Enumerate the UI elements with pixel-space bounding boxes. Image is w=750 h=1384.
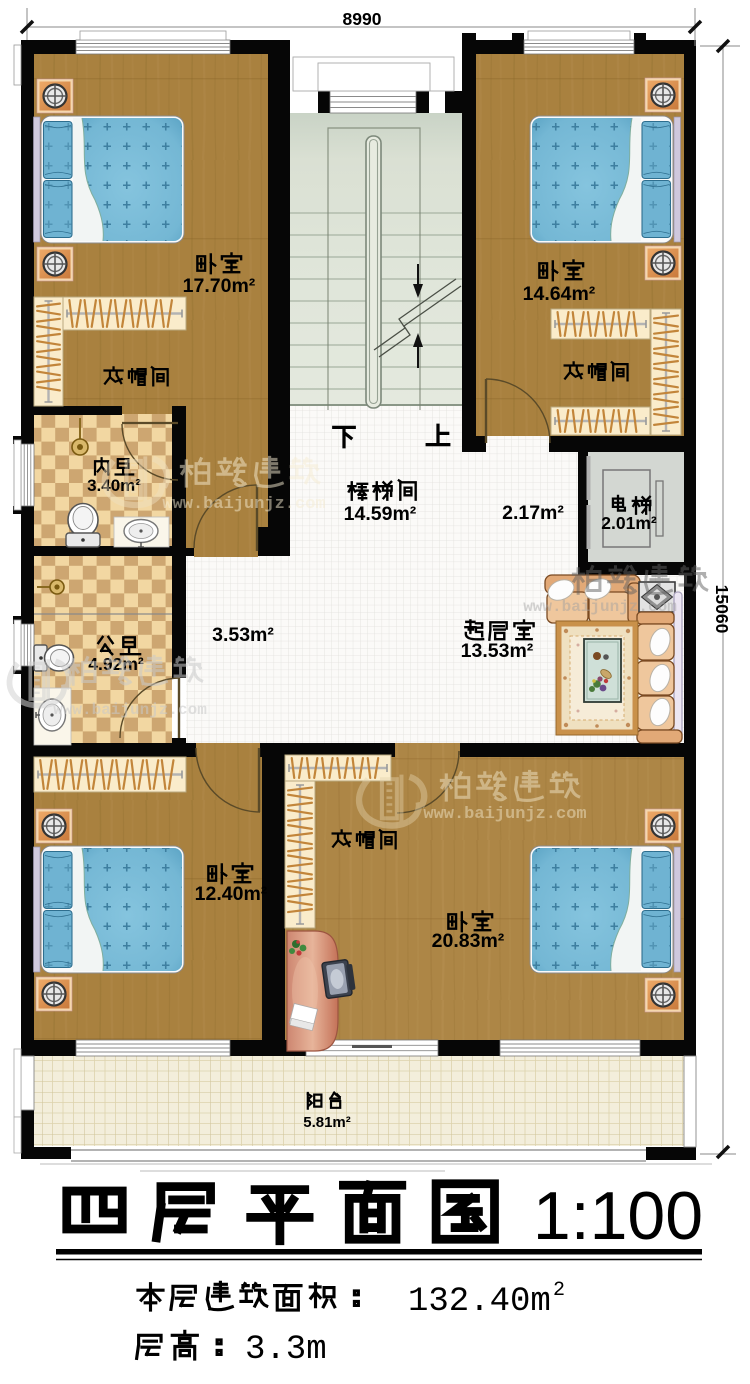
svg-text:15060: 15060 (712, 585, 732, 634)
svg-text:www.baijunjz.com: www.baijunjz.com (423, 805, 586, 824)
svg-text:www.baijunjz.com: www.baijunjz.com (162, 495, 325, 514)
svg-text:2.01m²: 2.01m² (601, 513, 657, 533)
svg-text:14.64m²: 14.64m² (523, 283, 596, 305)
svg-text:1:100: 1:100 (533, 1178, 703, 1254)
svg-text:3.3m: 3.3m (245, 1331, 327, 1369)
svg-text:www.baijunjz.com: www.baijunjz.com (523, 598, 677, 616)
svg-text:8990: 8990 (343, 9, 382, 29)
svg-text:14.59m²: 14.59m² (344, 503, 417, 525)
svg-text:20.83m²: 20.83m² (432, 930, 505, 952)
svg-text:www.baijunjz.com: www.baijunjz.com (53, 701, 207, 719)
svg-text:13.53m²: 13.53m² (461, 640, 534, 662)
svg-text:4.92m²: 4.92m² (88, 654, 144, 674)
svg-text:2.17m²: 2.17m² (502, 502, 564, 524)
svg-text:5.81m²: 5.81m² (303, 1114, 351, 1131)
svg-text:2: 2 (553, 1279, 565, 1302)
svg-text:132.40m: 132.40m (408, 1283, 551, 1321)
svg-text:17.70m²: 17.70m² (183, 275, 256, 297)
svg-text:12.40m²: 12.40m² (195, 883, 268, 905)
svg-text:3.53m²: 3.53m² (212, 624, 274, 646)
